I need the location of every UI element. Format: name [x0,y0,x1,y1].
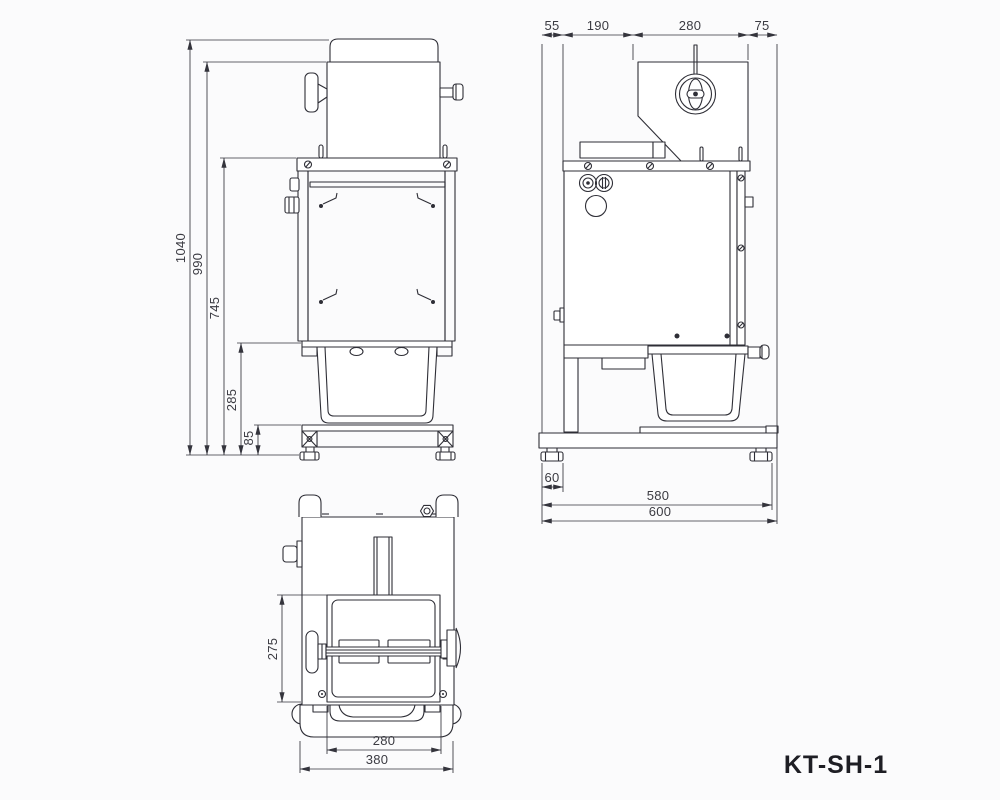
side-pusher-arm [580,142,653,158]
side-spout [748,345,769,359]
side-hopper-knob [676,74,716,114]
front-feet [300,447,455,460]
side-base-cap [766,426,778,433]
top-post-right [436,495,458,517]
dim-label-total-height: 1040 [173,233,188,263]
side-bucket [652,354,745,421]
side-latch [745,197,753,207]
side-bucket-rim [648,346,748,354]
front-bin [317,347,437,423]
front-head-box [327,62,440,158]
technical-drawing-canvas: 1040 990 745 285 85 [0,0,1000,800]
top-handle [306,631,318,673]
side-bracket [602,358,645,369]
side-left-pin [554,308,564,322]
front-top-band [297,158,457,171]
front-hood [330,39,438,62]
dim-label-frame-height: 745 [207,297,222,320]
top-machine [283,495,461,737]
dim-label-feet-span: 580 [647,488,670,503]
top-shaft [326,647,443,656]
side-dot-1 [675,334,680,339]
front-view: 1040 990 745 285 85 [173,39,463,460]
side-pedestal [640,427,777,433]
dim-label-foot-width: 60 [544,470,559,485]
dim-label-base-length: 600 [649,504,672,519]
front-rail-left [298,171,308,341]
top-bin-front [330,705,424,721]
front-side-shaft [440,84,463,100]
side-ledge [564,345,648,358]
side-dot-2 [725,334,730,339]
side-base [539,433,777,448]
front-left-fittings [285,178,299,213]
front-tab-left [302,347,317,356]
side-view: 55 190 280 75 60 580 600 [539,18,778,524]
front-machine [285,39,463,460]
top-left-knob [283,541,302,567]
side-rail [737,171,745,345]
dim-label-door-depth: 275 [265,638,280,661]
top-pusher-bar [374,537,392,596]
top-bolt [421,505,434,516]
top-view: 275 280 380 [265,495,461,773]
technical-drawing-page: 1040 990 745 285 85 [0,0,1000,800]
front-pin-right [443,145,447,158]
dim-label-body-height: 990 [190,253,205,276]
side-column [564,358,578,432]
front-latch-hooks [319,193,435,304]
dim-label-base-height: 85 [241,430,256,445]
side-machine [539,45,778,461]
front-tab-right [437,347,452,356]
side-pusher-arm-end [653,142,665,158]
front-cross-bar [310,182,445,187]
front-rail-right [445,171,455,341]
top-post-left [299,495,321,517]
front-door-panel [308,171,445,341]
front-bottom-plate [302,341,452,347]
front-handwheel [305,73,327,112]
side-feet [541,448,772,461]
dim-label-seg2: 190 [587,18,610,33]
dim-label-bin-height: 285 [224,389,239,412]
dim-label-seg1: 55 [544,18,559,33]
dim-label-seg4: 75 [754,18,769,33]
dim-label-door-width: 280 [373,733,396,748]
side-pin-2 [739,147,742,161]
dim-label-seg3: 280 [679,18,702,33]
front-base [302,425,453,447]
dim-label-base-width: 380 [366,752,389,767]
front-pin-left [319,145,323,158]
side-pin-1 [700,147,703,161]
model-label: KT-SH-1 [784,751,888,779]
